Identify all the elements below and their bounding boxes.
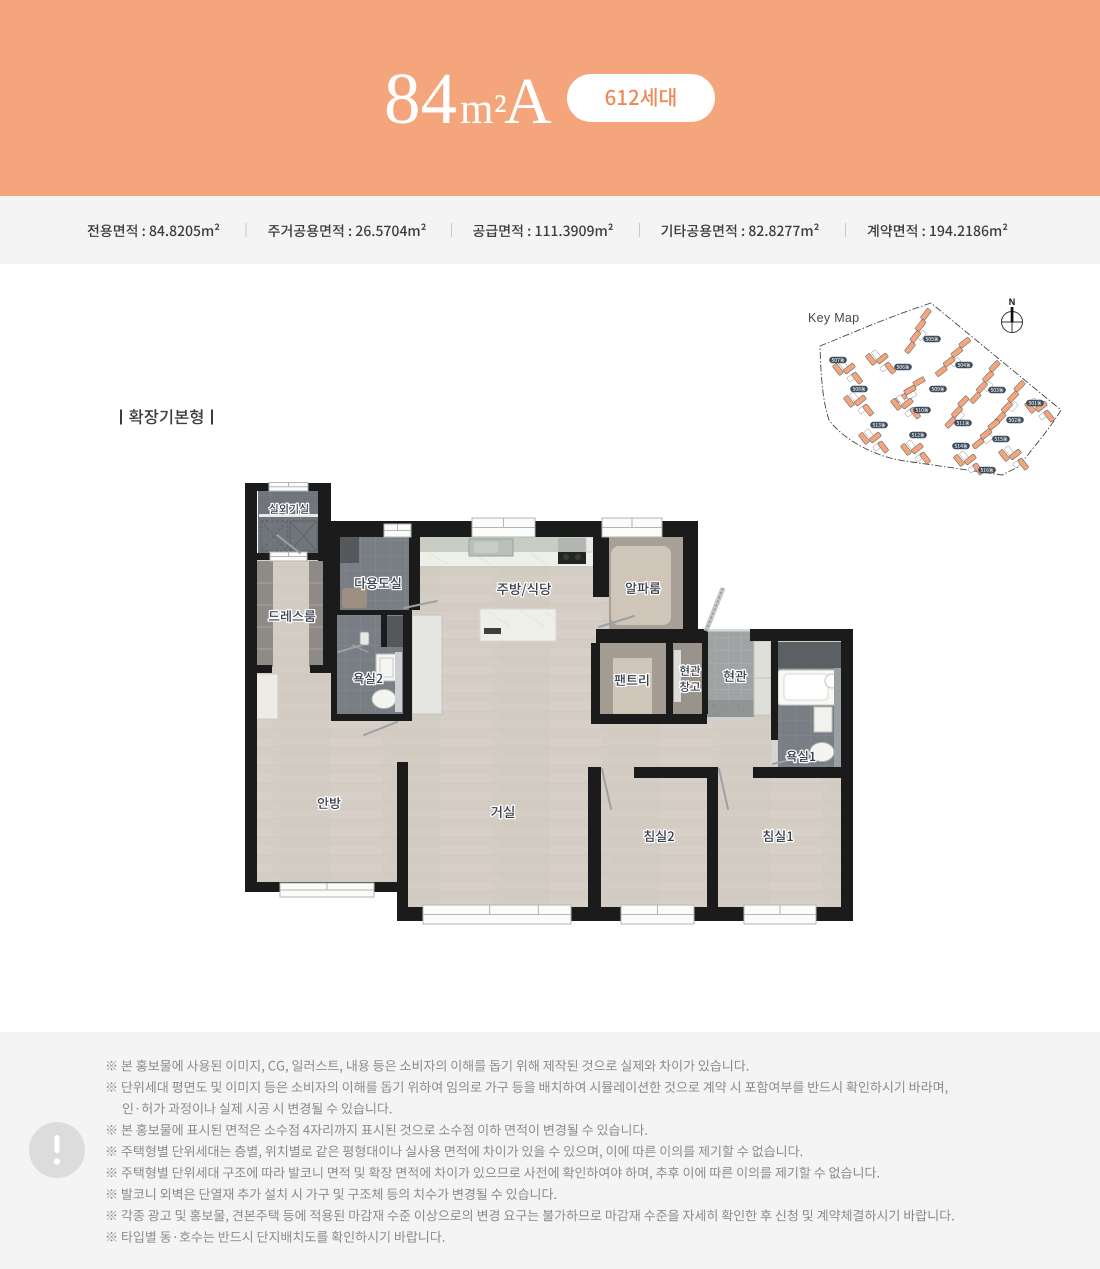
svg-text:84: 84 [384, 58, 457, 139]
svg-text:A: A [504, 65, 552, 138]
svg-text:N: N [1009, 297, 1016, 307]
svg-text:m: m [460, 86, 493, 133]
svg-text:Key Map: Key Map [808, 311, 859, 325]
